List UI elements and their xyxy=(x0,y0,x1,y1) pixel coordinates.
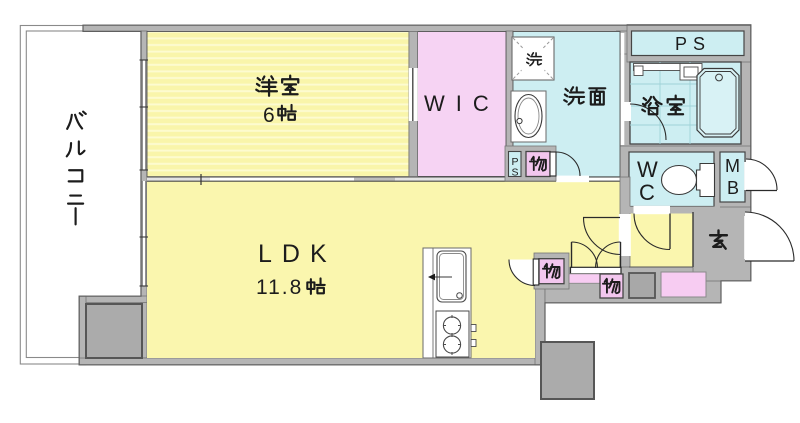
svg-text:6: 6 xyxy=(263,104,275,127)
svg-text:W: W xyxy=(637,157,658,182)
svg-text:11.8: 11.8 xyxy=(256,276,303,299)
svg-text:LDK: LDK xyxy=(258,240,337,268)
svg-text:PS: PS xyxy=(675,34,711,54)
svg-text:M: M xyxy=(725,156,740,176)
svg-text:B: B xyxy=(727,178,739,198)
svg-text:WIC: WIC xyxy=(424,91,500,116)
svg-text:C: C xyxy=(639,180,655,205)
svg-text:S: S xyxy=(512,167,519,179)
